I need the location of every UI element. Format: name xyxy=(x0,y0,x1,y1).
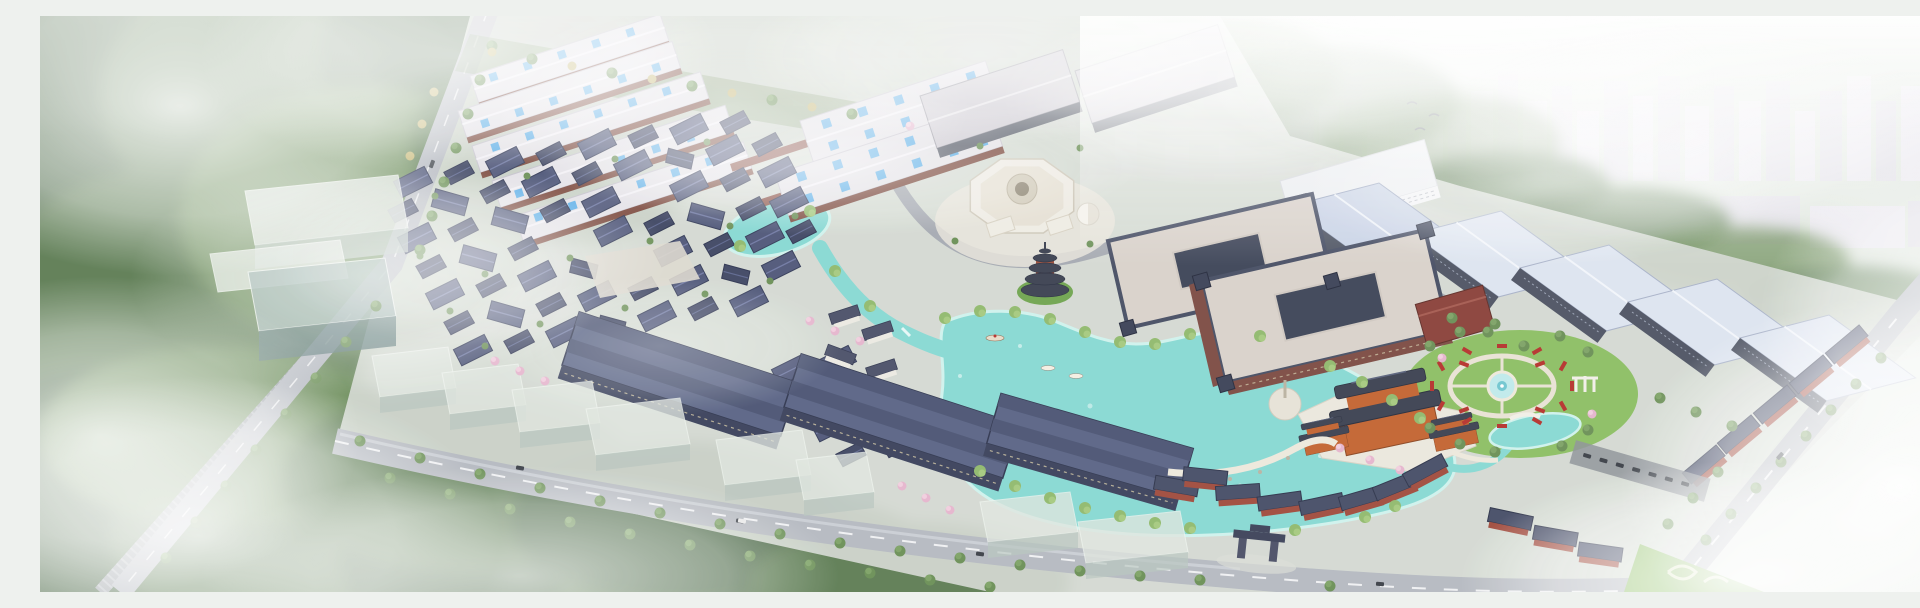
aerial-rendering: Bird's-eye master-plan rendering of a Ch… xyxy=(40,16,1920,592)
mist-layer xyxy=(40,16,1920,592)
scene-canvas xyxy=(40,16,1920,592)
